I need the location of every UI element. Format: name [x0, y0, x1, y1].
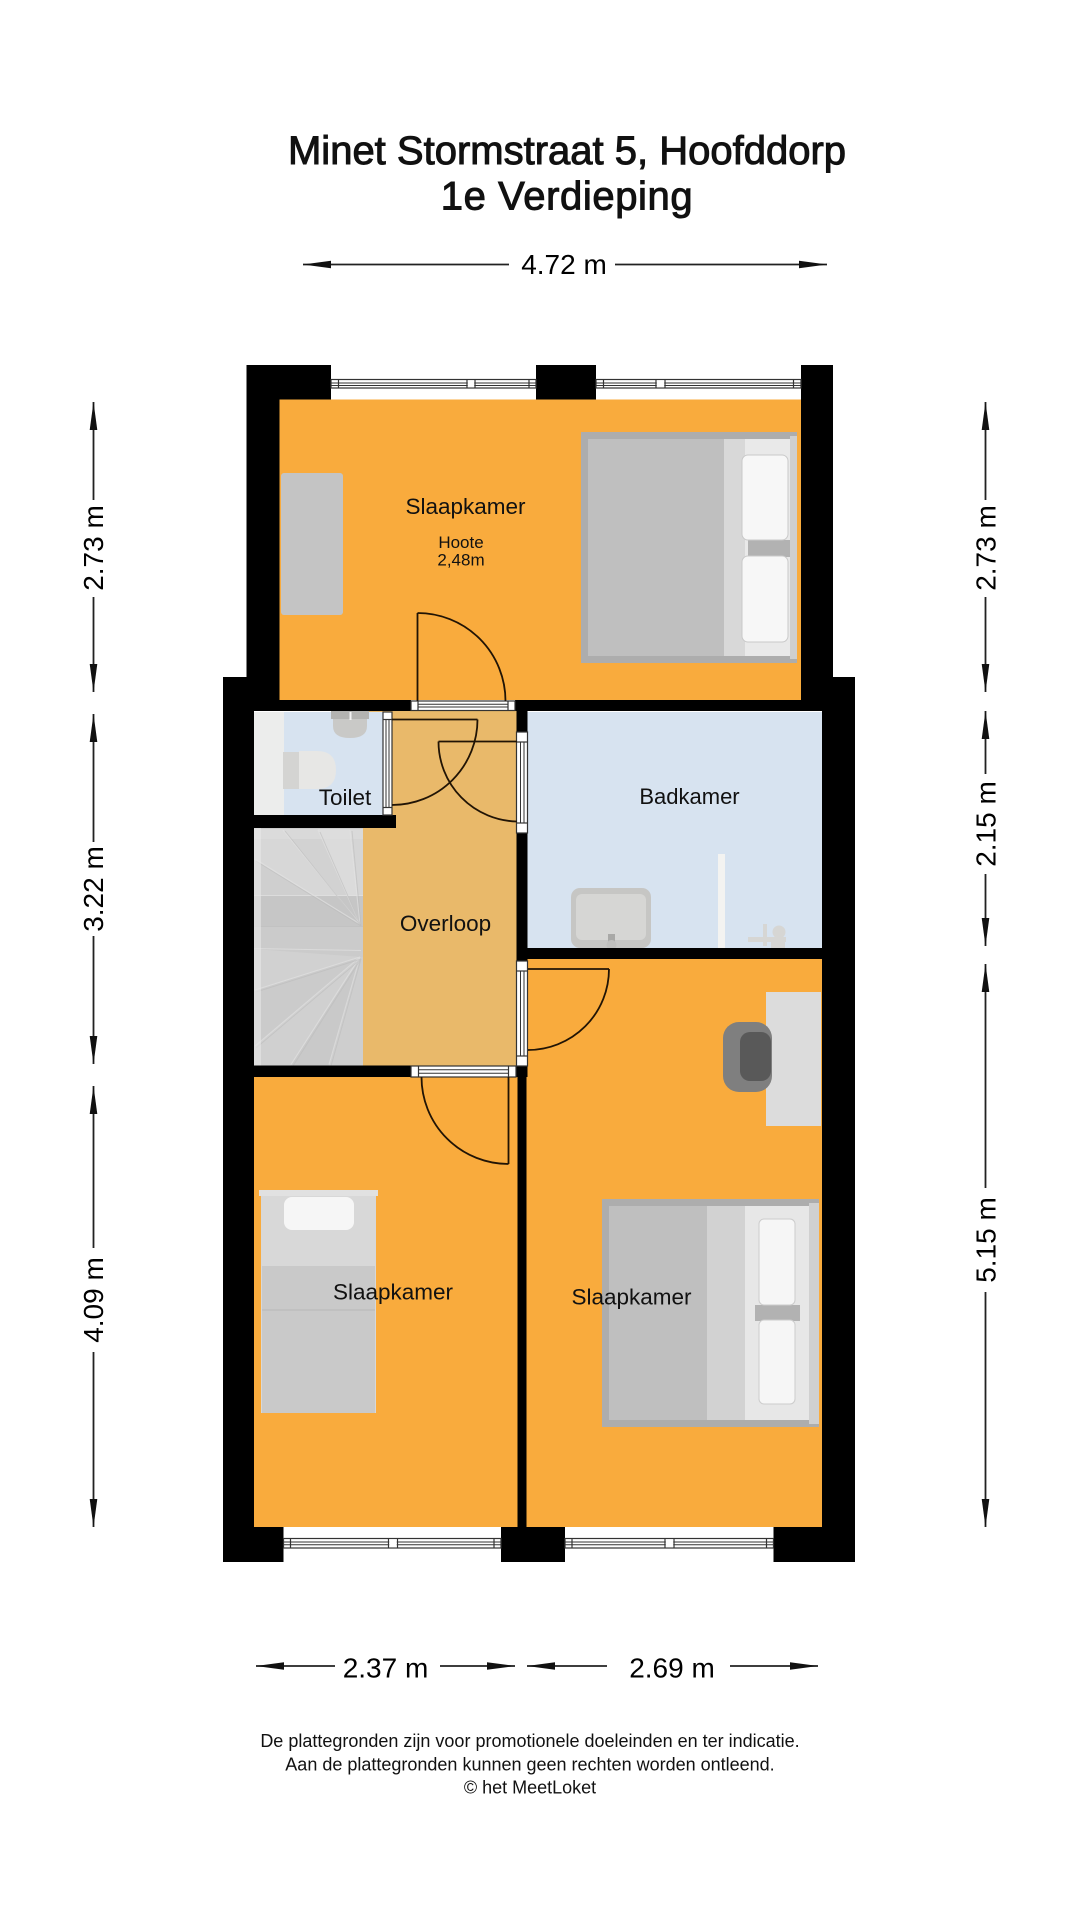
- svg-text:Minet Stormstraat 5, Hoofddorp: Minet Stormstraat 5, Hoofddorp: [288, 129, 846, 173]
- svg-text:© het MeetLoket: © het MeetLoket: [464, 1778, 596, 1798]
- svg-text:2.37 m: 2.37 m: [343, 1653, 429, 1684]
- svg-text:Overloop: Overloop: [400, 911, 491, 936]
- svg-text:2.15 m: 2.15 m: [971, 781, 1002, 867]
- svg-text:Slaapkamer: Slaapkamer: [571, 1285, 692, 1310]
- svg-text:Hoote: Hoote: [438, 533, 483, 552]
- svg-text:Slaapkamer: Slaapkamer: [405, 494, 526, 519]
- svg-text:Slaapkamer: Slaapkamer: [333, 1280, 454, 1305]
- svg-text:2.69 m: 2.69 m: [629, 1653, 715, 1684]
- svg-text:5.15 m: 5.15 m: [971, 1197, 1002, 1283]
- svg-text:4.72 m: 4.72 m: [521, 249, 607, 280]
- svg-text:Aan de plattegronden kunnen ge: Aan de plattegronden kunnen geen rechten…: [285, 1755, 774, 1775]
- svg-text:2.73 m: 2.73 m: [971, 505, 1002, 591]
- svg-text:4.09 m: 4.09 m: [78, 1257, 109, 1343]
- svg-text:2.73 m: 2.73 m: [78, 505, 109, 591]
- svg-text:De plattegronden zijn voor pro: De plattegronden zijn voor promotionele …: [260, 1731, 799, 1751]
- svg-text:Toilet: Toilet: [319, 785, 372, 810]
- svg-text:1e Verdieping: 1e Verdieping: [441, 175, 693, 219]
- svg-text:Badkamer: Badkamer: [639, 784, 739, 809]
- svg-text:3.22 m: 3.22 m: [78, 846, 109, 932]
- svg-text:2,48m: 2,48m: [437, 551, 484, 570]
